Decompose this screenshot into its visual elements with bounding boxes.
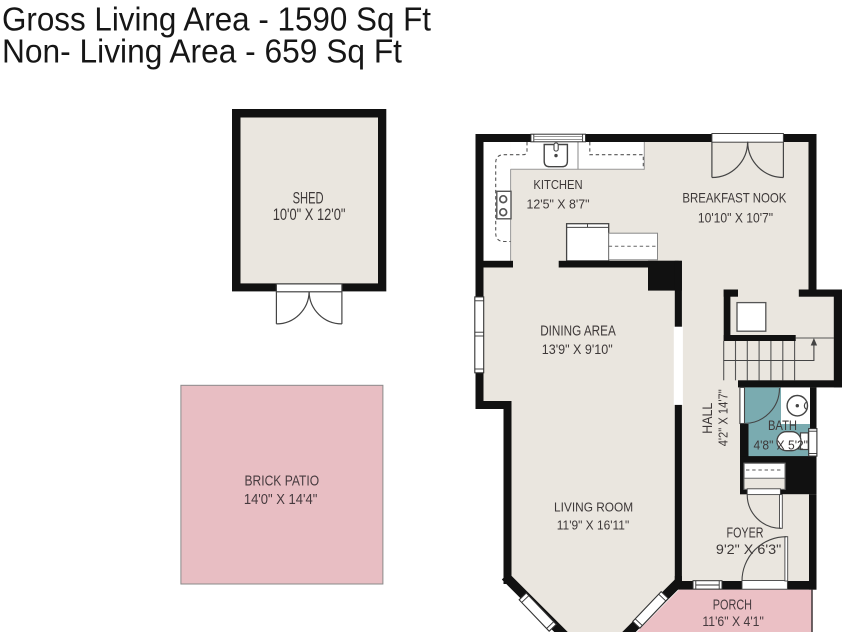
svg-text:HALL: HALL bbox=[700, 402, 715, 433]
svg-text:BRICK PATIO: BRICK PATIO bbox=[245, 473, 320, 490]
svg-text:SHED: SHED bbox=[293, 189, 324, 208]
svg-text:13'9" X 9'10": 13'9" X 9'10" bbox=[542, 341, 613, 357]
svg-text:PORCH: PORCH bbox=[713, 598, 752, 614]
svg-text:11'9" X 16'11": 11'9" X 16'11" bbox=[557, 519, 629, 533]
svg-text:Non- Living Area - 659 Sq Ft: Non- Living Area - 659 Sq Ft bbox=[2, 34, 403, 71]
svg-text:11'6" X 4'1": 11'6" X 4'1" bbox=[702, 613, 763, 629]
svg-text:LIVING ROOM: LIVING ROOM bbox=[554, 500, 633, 514]
svg-text:4'8" X 5'2": 4'8" X 5'2" bbox=[753, 437, 808, 452]
svg-text:DINING AREA: DINING AREA bbox=[540, 324, 616, 340]
svg-text:10'10" X 10'7": 10'10" X 10'7" bbox=[698, 210, 773, 225]
svg-text:FOYER: FOYER bbox=[727, 525, 764, 541]
svg-text:BREAKFAST NOOK: BREAKFAST NOOK bbox=[682, 189, 787, 205]
svg-text:KITCHEN: KITCHEN bbox=[533, 177, 582, 192]
svg-text:4'2" X 14'7": 4'2" X 14'7" bbox=[716, 389, 731, 446]
svg-text:12'5" X 8'7": 12'5" X 8'7" bbox=[527, 197, 590, 211]
svg-text:14'0" X 14'4": 14'0" X 14'4" bbox=[244, 492, 318, 508]
svg-text:9'2" X 6'3": 9'2" X 6'3" bbox=[716, 541, 781, 557]
svg-text:BATH: BATH bbox=[768, 417, 797, 433]
svg-text:10'0" X 12'0": 10'0" X 12'0" bbox=[273, 206, 346, 224]
